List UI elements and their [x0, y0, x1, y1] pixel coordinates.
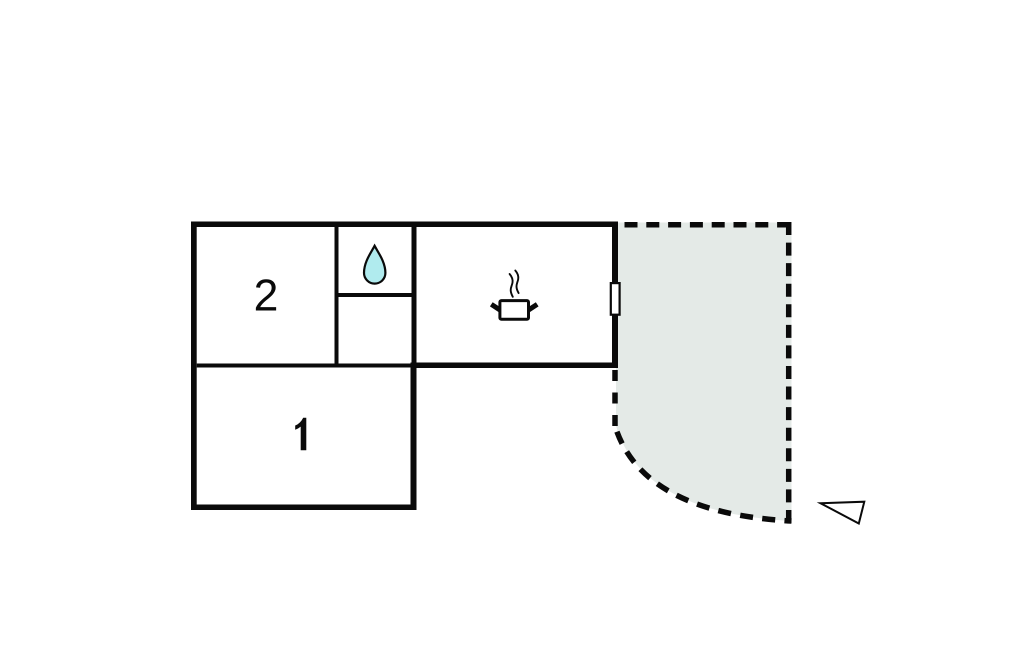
svg-text:2: 2 [254, 272, 279, 321]
